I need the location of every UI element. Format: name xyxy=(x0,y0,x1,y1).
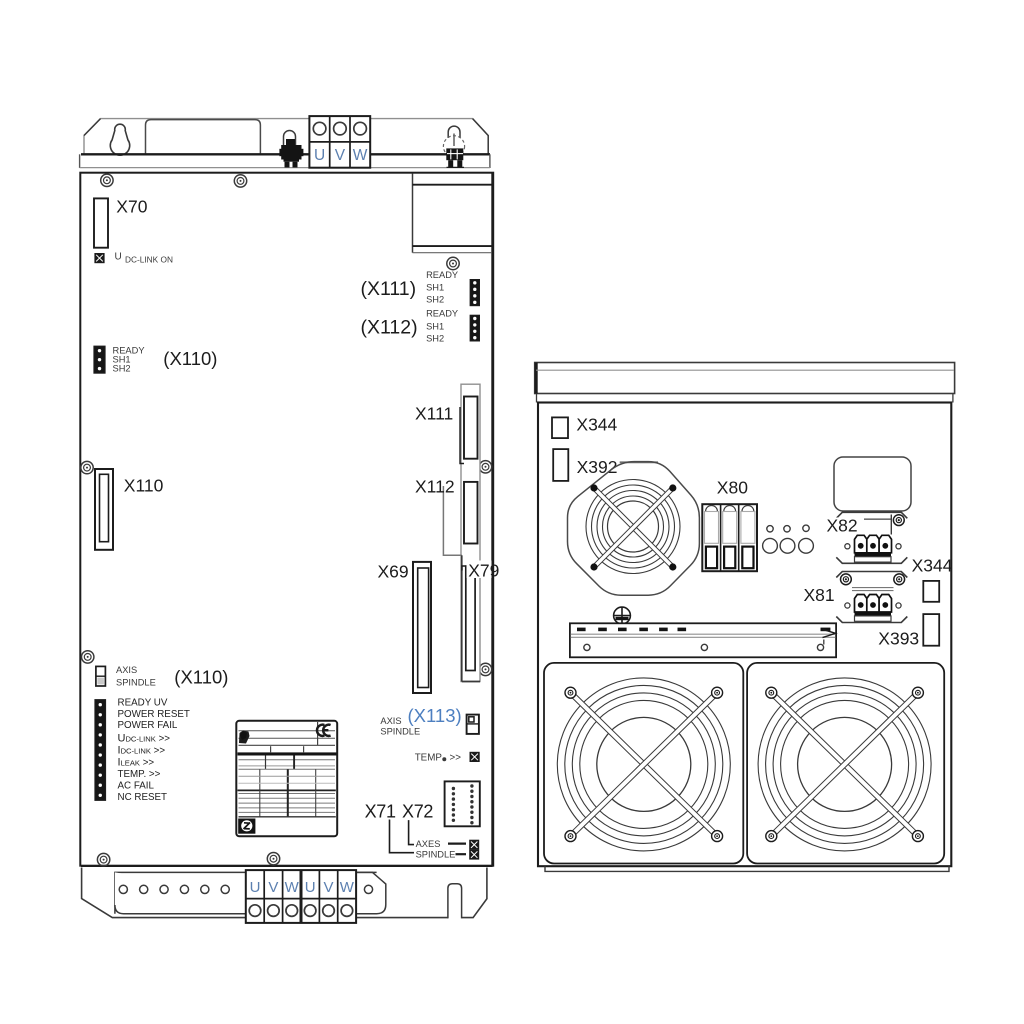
svg-text:SH2: SH2 xyxy=(113,364,131,374)
svg-text:(X111): (X111) xyxy=(361,278,417,300)
svg-text:TEMP: TEMP xyxy=(415,753,443,764)
svg-text:V: V xyxy=(268,879,278,896)
svg-text:V: V xyxy=(335,147,346,164)
svg-text:AC FAIL: AC FAIL xyxy=(118,780,155,791)
svg-text:SH2: SH2 xyxy=(426,294,444,304)
svg-text:(X113): (X113) xyxy=(408,705,462,726)
svg-text:READY UV: READY UV xyxy=(118,698,168,709)
svg-text:X393: X393 xyxy=(878,628,919,648)
svg-text:READY: READY xyxy=(426,270,458,280)
svg-text:X112: X112 xyxy=(415,476,455,496)
svg-text:X110: X110 xyxy=(124,475,164,495)
svg-text:U: U xyxy=(314,147,325,164)
svg-text:SH1: SH1 xyxy=(426,321,444,331)
svg-text:READY: READY xyxy=(426,308,458,318)
svg-text:X344: X344 xyxy=(576,415,617,435)
svg-text:(X112): (X112) xyxy=(361,316,418,338)
svg-text:AXES: AXES xyxy=(416,839,441,849)
svg-text:X81: X81 xyxy=(804,585,835,605)
svg-text:UDC-LINK >>: UDC-LINK >> xyxy=(118,733,171,745)
svg-text:IDC-LINK >>: IDC-LINK >> xyxy=(118,745,166,757)
svg-text:POWER FAIL: POWER FAIL xyxy=(118,720,178,731)
svg-text:X80: X80 xyxy=(717,478,748,498)
svg-text:SH1: SH1 xyxy=(426,282,444,292)
svg-text:X344: X344 xyxy=(912,555,953,575)
svg-text:X79: X79 xyxy=(468,561,499,581)
svg-text:AXIS: AXIS xyxy=(116,665,137,675)
svg-text:W: W xyxy=(353,147,368,164)
svg-text:W: W xyxy=(285,879,300,896)
svg-text:V: V xyxy=(324,879,334,896)
svg-text:DC-LINK ON: DC-LINK ON xyxy=(125,254,173,264)
svg-text:X71: X71 xyxy=(365,802,396,822)
svg-text:(X110): (X110) xyxy=(163,348,217,369)
svg-text:U: U xyxy=(250,879,261,896)
svg-text:W: W xyxy=(340,879,355,896)
svg-text:(X110): (X110) xyxy=(174,666,228,687)
svg-text:SPINDLE: SPINDLE xyxy=(380,727,420,737)
svg-text:X69: X69 xyxy=(378,561,409,581)
svg-text:AXIS: AXIS xyxy=(380,716,401,726)
svg-text:SPINDLE: SPINDLE xyxy=(416,850,456,860)
svg-text:SH2: SH2 xyxy=(426,333,444,343)
svg-text:ILEAK >>: ILEAK >> xyxy=(118,757,155,769)
svg-text:SPINDLE: SPINDLE xyxy=(116,678,156,688)
svg-text:>>: >> xyxy=(450,752,462,763)
svg-text:X111: X111 xyxy=(415,404,453,424)
svg-text:POWER RESET: POWER RESET xyxy=(118,709,190,720)
svg-text:TEMP. >>: TEMP. >> xyxy=(118,769,161,780)
svg-text:U: U xyxy=(305,879,316,896)
svg-text:NC RESET: NC RESET xyxy=(118,792,168,803)
svg-text:X72: X72 xyxy=(402,802,433,822)
svg-text:X82: X82 xyxy=(827,516,858,536)
svg-text:U: U xyxy=(115,252,122,263)
svg-text:X392: X392 xyxy=(577,457,618,477)
svg-text:X70: X70 xyxy=(116,196,147,216)
